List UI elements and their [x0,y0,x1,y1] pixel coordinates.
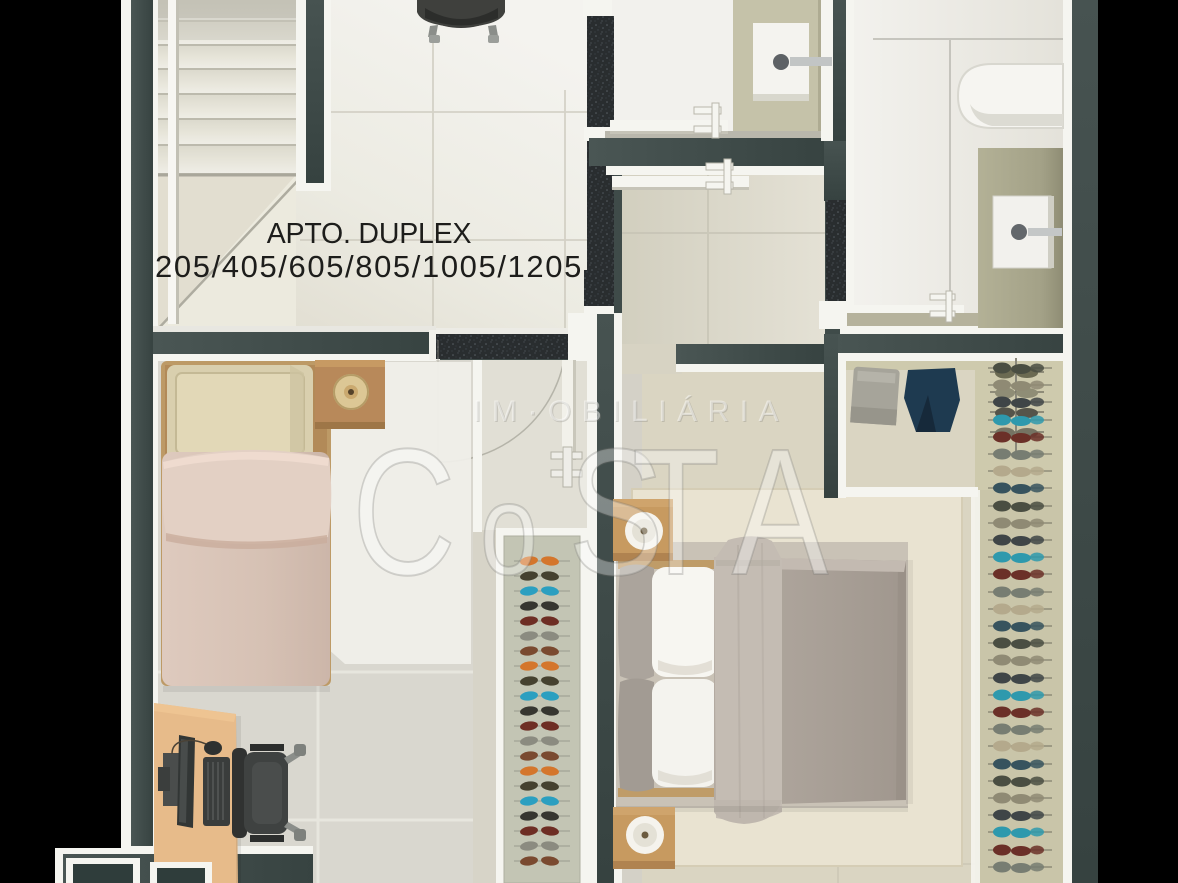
svg-text:205/405/605/805/1005/1205: 205/405/605/805/1005/1205 [155,249,583,284]
svg-text:T: T [632,411,720,613]
svg-text:C: C [352,411,456,613]
svg-text:o: o [480,456,538,602]
svg-text:A: A [732,411,828,613]
svg-text:APTO. DUPLEX: APTO. DUPLEX [267,218,472,250]
